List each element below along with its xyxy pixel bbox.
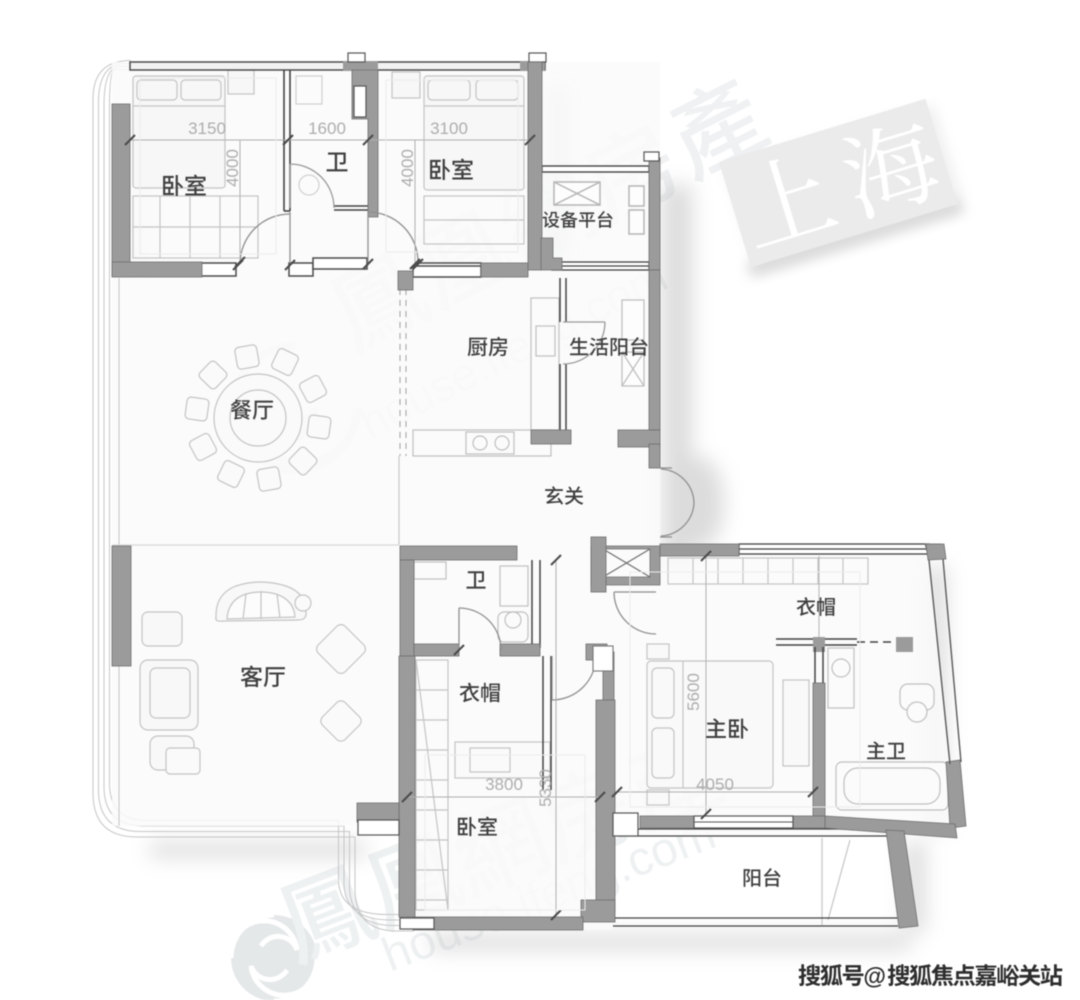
svg-text:4000: 4000 xyxy=(398,149,417,187)
svg-text:3150: 3150 xyxy=(188,119,226,138)
svg-text:1600: 1600 xyxy=(308,119,346,138)
svg-text:5330: 5330 xyxy=(536,769,555,807)
svg-text:3800: 3800 xyxy=(485,775,523,794)
svg-text:4050: 4050 xyxy=(696,775,734,794)
svg-text:@: @ xyxy=(863,963,886,989)
svg-text:4000: 4000 xyxy=(223,149,242,187)
svg-text:3100: 3100 xyxy=(430,119,468,138)
svg-text:5600: 5600 xyxy=(684,673,703,711)
